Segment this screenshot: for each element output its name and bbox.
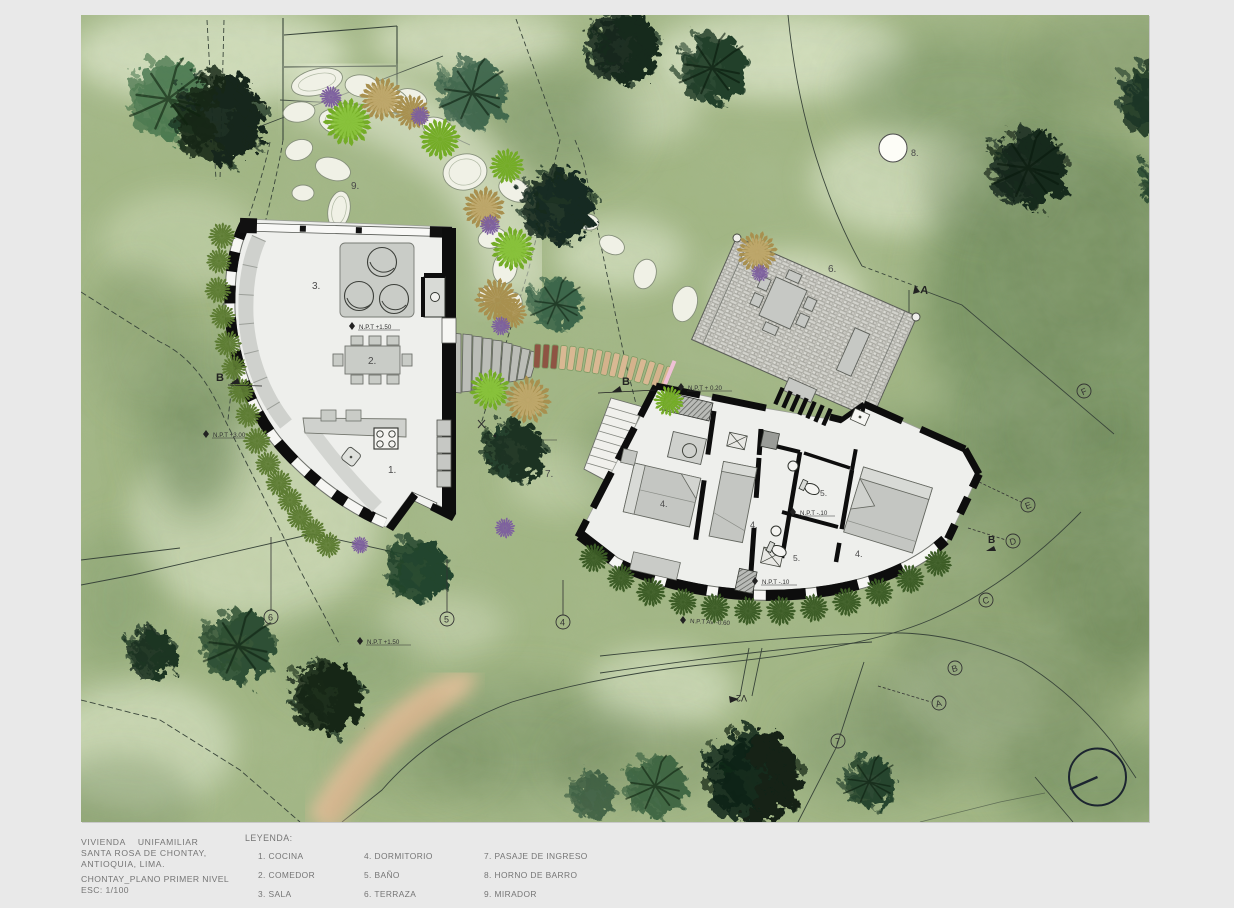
svg-text:ESC: 1/100: ESC: 1/100 [81,885,129,895]
svg-text:9. MIRADOR: 9. MIRADOR [484,889,537,899]
svg-text:6: 6 [268,613,273,623]
svg-text:8. HORNO DE BARRO: 8. HORNO DE BARRO [484,870,577,880]
svg-text:2.: 2. [368,356,376,367]
svg-text:4.: 4. [855,549,863,559]
svg-text:B: B [216,372,224,384]
svg-text:V2: V2 [736,693,747,703]
svg-text:5: 5 [444,615,449,625]
svg-text:1. COCINA: 1. COCINA [258,851,303,861]
svg-text:9.: 9. [351,181,359,192]
svg-text:6. TERRAZA: 6. TERRAZA [364,889,416,899]
svg-text:8.: 8. [911,148,919,158]
svg-text:5.: 5. [793,553,800,563]
svg-text:B: B [622,376,630,388]
svg-text:6.: 6. [828,264,836,275]
svg-text:3.: 3. [312,281,320,292]
svg-text:7.: 7. [545,469,553,480]
svg-text:4.: 4. [660,499,668,509]
svg-text:3. SALA: 3. SALA [258,889,292,899]
svg-text:2. COMEDOR: 2. COMEDOR [258,870,315,880]
svg-text:LEYENDA:: LEYENDA: [245,833,293,843]
svg-text:5.: 5. [820,488,827,498]
svg-text:1.: 1. [388,465,396,476]
svg-text:4: 4 [560,618,565,628]
svg-text:VIVIENDA UNIFAMILIAR: VIVIENDA UNIFAMILIAR [81,837,198,847]
svg-text:7: 7 [835,737,840,747]
svg-text:7. PASAJE DE INGRESO: 7. PASAJE DE INGRESO [484,851,588,861]
svg-text:4. DORMITORIO: 4. DORMITORIO [364,851,433,861]
svg-text:4.: 4. [750,520,758,530]
svg-text:CHONTAY_PLANO PRIMER NIVEL: CHONTAY_PLANO PRIMER NIVEL [81,874,229,884]
svg-text:ANTIOQUIA, LIMA.: ANTIOQUIA, LIMA. [81,859,165,869]
svg-text:SANTA ROSA DE CHONTAY,: SANTA ROSA DE CHONTAY, [81,848,207,858]
svg-text:5. BAÑO: 5. BAÑO [364,870,400,880]
